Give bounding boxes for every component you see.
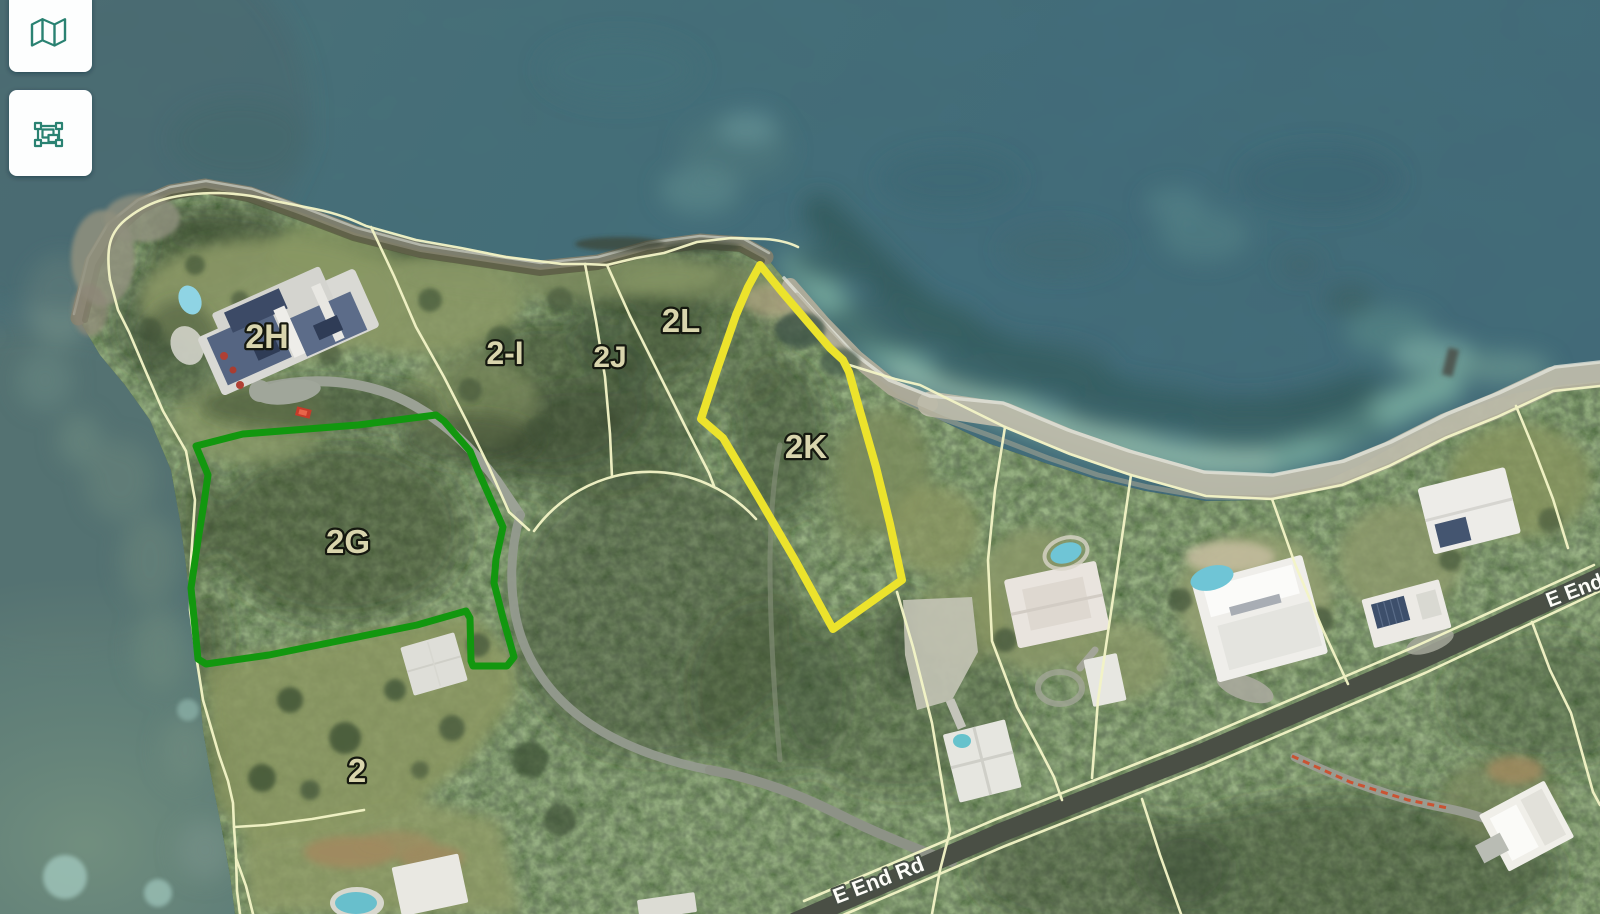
svg-text:2J: 2J [593,341,626,374]
svg-text:2H: 2H [245,318,288,356]
svg-text:2L: 2L [662,302,701,339]
svg-text:2G: 2G [326,523,370,560]
svg-text:2K: 2K [785,428,827,465]
svg-text:2: 2 [348,752,366,789]
svg-text:2-I: 2-I [486,335,523,371]
